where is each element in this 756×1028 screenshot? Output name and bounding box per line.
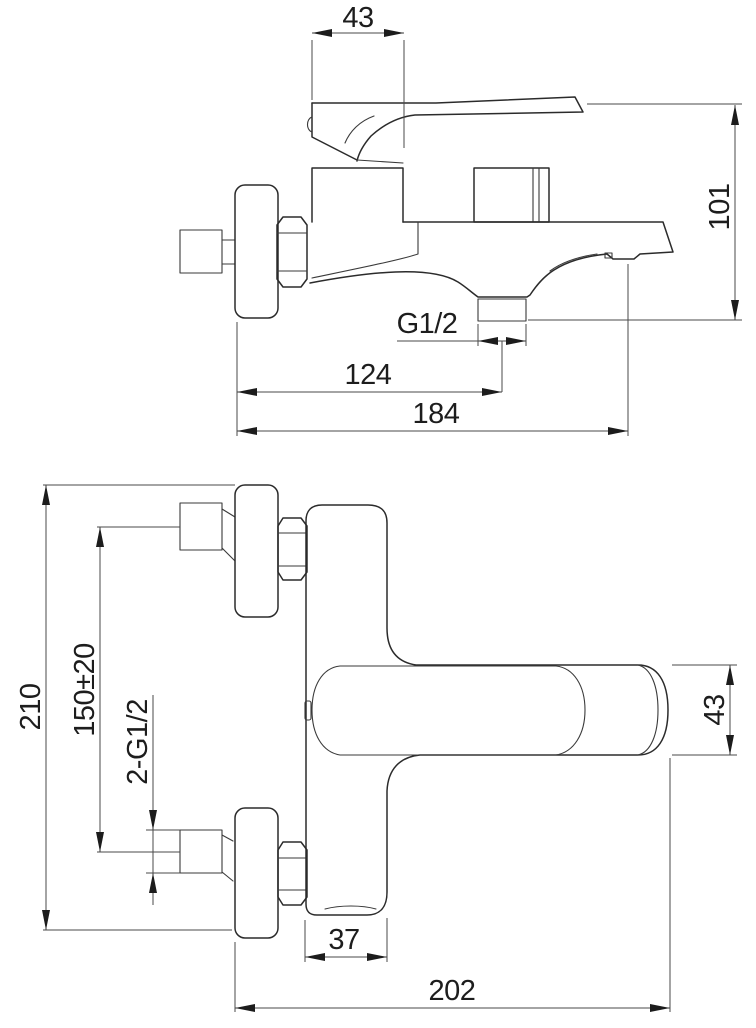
dim-side-wall-to-tip: 184: [237, 264, 628, 436]
front-bottom-nipple-thread: [180, 830, 222, 873]
front-top-nipple-thread: [180, 503, 222, 550]
dim-label: 150±20: [69, 643, 101, 737]
side-handle-lever: [308, 97, 584, 163]
dim-label: 101: [704, 184, 736, 231]
side-hex-nut: [277, 217, 307, 287]
dim-front-overall-width: 202: [235, 758, 670, 1012]
side-view: 43 101 G1/2 124: [180, 2, 742, 436]
front-bar-endcap-line: [638, 665, 658, 755]
dim-label: 184: [413, 398, 460, 430]
front-lever-panel: [312, 666, 585, 755]
front-view: 210 150±20 2-G1/2 43: [15, 485, 737, 1012]
front-top-hex-nut: [278, 518, 307, 580]
dim-front-spout-width: 37: [305, 918, 387, 962]
dim-label: 43: [342, 2, 373, 34]
side-outlet-thread: [478, 299, 526, 321]
dim-label: 210: [15, 684, 47, 731]
side-nipple-thread: [180, 230, 222, 273]
dim-side-handle-width: 43: [312, 2, 404, 148]
dim-label: 43: [699, 694, 731, 725]
side-body-column: [312, 168, 403, 222]
front-bottom-hex-nut: [278, 842, 307, 905]
front-body-outline: [305, 505, 668, 915]
dim-side-wall-to-outlet: 124: [237, 322, 502, 436]
side-nipple-neck: [222, 240, 235, 264]
side-escutcheon: [235, 185, 278, 318]
dim-label: G1/2: [397, 308, 458, 340]
side-inlet-nipple: [180, 230, 235, 273]
side-spout-body: [310, 222, 673, 297]
dim-front-inlet-thread: 2-G1/2: [122, 695, 180, 905]
drawing-sheet: 43 101 G1/2 124: [0, 0, 756, 1028]
front-top-escutcheon: [235, 485, 278, 617]
dim-label: 2-G1/2: [122, 699, 154, 785]
side-diverter-block: [474, 168, 549, 222]
dim-side-overall-height: 101: [528, 104, 742, 320]
front-top-inlet: [180, 485, 307, 617]
front-bottom-escutcheon: [235, 808, 278, 938]
front-spout-mouth: [325, 906, 376, 909]
dim-label: 202: [429, 975, 476, 1007]
front-bottom-inlet: [180, 808, 307, 938]
dim-front-inlet-spacing: 150±20: [69, 527, 180, 852]
dim-front-body-height: 43: [672, 665, 737, 755]
dim-label: 37: [328, 924, 359, 956]
faucet-technical-drawing: 43 101 G1/2 124: [0, 0, 756, 1028]
dim-label: 124: [345, 359, 392, 391]
